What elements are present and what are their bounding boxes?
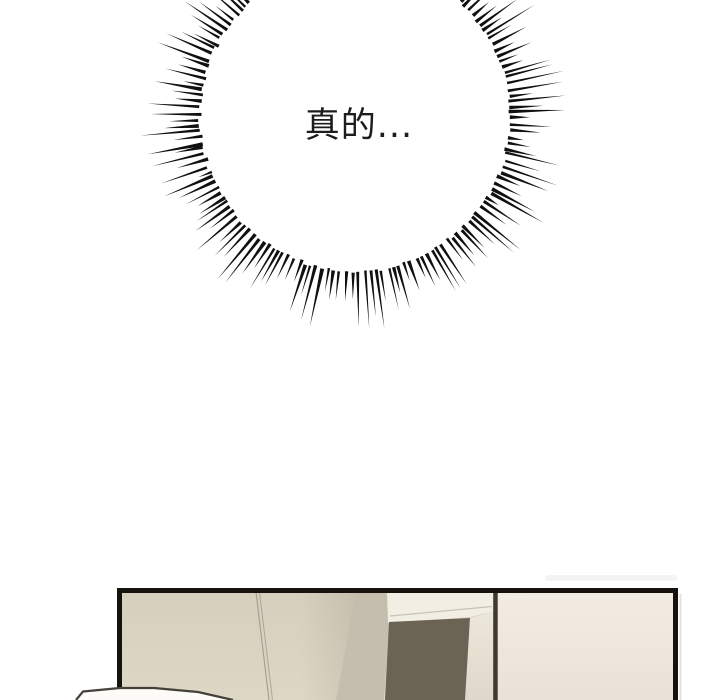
wall-divider-line xyxy=(493,592,498,700)
comic-page: 真的... xyxy=(0,0,720,700)
outer-haze xyxy=(545,575,677,581)
right-wall-highlight xyxy=(498,596,673,597)
panel-scene xyxy=(121,592,675,700)
doorway-opening xyxy=(385,618,470,700)
comic-panel xyxy=(0,0,720,700)
right-wall xyxy=(498,592,673,700)
